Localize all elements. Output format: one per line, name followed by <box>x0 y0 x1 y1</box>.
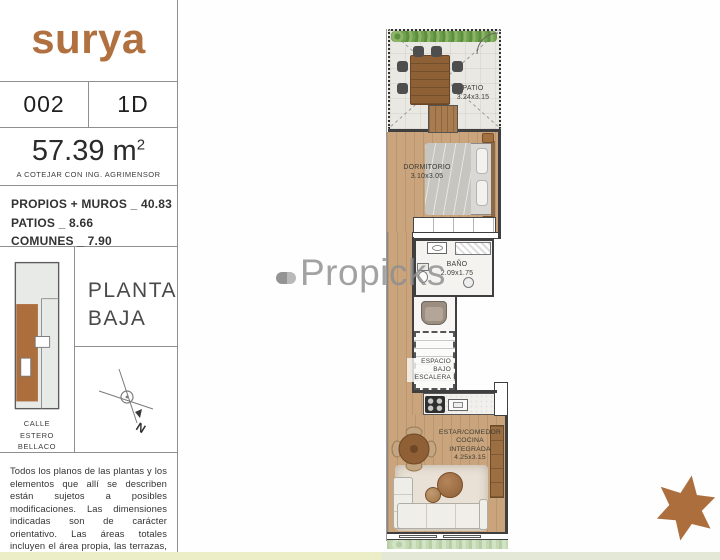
bedroom-dims: 3.10x3.05 <box>403 173 451 182</box>
bedroom-name: DORMITORIO <box>403 164 451 173</box>
wall <box>412 232 501 239</box>
patio-table <box>410 55 450 105</box>
wall <box>498 129 501 239</box>
disclaimer: Todos los planos de las plantas y los el… <box>0 453 177 560</box>
floor-label-line2: BAJA <box>88 305 177 333</box>
under-stairs-line3: ESCALERA <box>407 374 451 382</box>
front-garden-strip <box>387 540 508 549</box>
kitchen-sink <box>448 399 468 411</box>
window <box>399 535 437 538</box>
keyplan-cell: CALLE ESTERO BELLACO <box>0 247 75 452</box>
watermark: Propicks <box>276 252 446 294</box>
dining-table <box>391 426 437 472</box>
keyplan-right-column: PLANTA BAJA N <box>75 247 177 452</box>
floor-label: PLANTA BAJA <box>75 247 177 347</box>
living-name-line1: ESTAR/COMEDOR <box>435 429 505 437</box>
patio-door-arc <box>475 31 500 56</box>
wood-deck-step <box>428 105 458 133</box>
wall <box>455 297 457 390</box>
watermark-text: Propicks <box>300 252 446 294</box>
unit-type: 1D <box>89 82 177 127</box>
total-area-value: 57.39 m <box>32 135 137 167</box>
patio-chair <box>452 61 463 72</box>
pouf <box>425 487 441 503</box>
nightstand <box>482 133 494 143</box>
keyplan-caption-line1: CALLE <box>0 418 74 429</box>
patio-name: PATIO <box>451 85 495 94</box>
cooktop <box>425 396 445 413</box>
compass-icon: N <box>91 365 161 435</box>
floorplan-sheet: surya 002 1D 57.39 m2 A COTEJAR CON ING.… <box>0 0 720 560</box>
breakdown-propios: PROPIOS + MUROS _ 40.83 <box>11 195 177 214</box>
patio-chair <box>431 46 442 57</box>
armchair <box>421 301 447 325</box>
wardrobe <box>413 217 496 233</box>
living-dims: 4.25x3.15 <box>435 454 505 462</box>
living-label: ESTAR/COMEDOR COCINA INTEGRADA 4.25x3.15 <box>435 429 505 463</box>
patio-chair <box>397 61 408 72</box>
keyplan-caption: CALLE ESTERO BELLACO <box>0 418 74 452</box>
patio-chair <box>413 46 424 57</box>
floor-label-line1: PLANTA <box>88 277 177 305</box>
total-area-sup: 2 <box>137 136 145 153</box>
keyplan-icon <box>11 259 63 412</box>
keyplan-section: CALLE ESTERO BELLACO PLANTA BAJA <box>0 247 177 453</box>
breakdown-patios: PATIOS _ 8.66 <box>11 214 177 233</box>
kitchen-floor <box>412 393 423 415</box>
ground-strip <box>0 552 720 560</box>
under-stairs-line2: BAJO <box>407 366 451 374</box>
total-area: 57.39 m2 <box>0 135 177 168</box>
shower <box>455 242 491 255</box>
patio-dims: 3.24x3.15 <box>451 94 495 103</box>
area-note: A COTEJAR CON ING. AGRIMENSOR <box>0 170 177 179</box>
compass-n-label: N <box>133 419 148 434</box>
star-burst-icon <box>650 470 720 546</box>
sidebar: surya 002 1D 57.39 m2 A COTEJAR CON ING.… <box>0 0 178 552</box>
bathroom-fixture <box>463 277 474 288</box>
living-name-line2: COCINA INTEGRADA <box>435 437 505 454</box>
sofa-armrest <box>479 499 488 530</box>
watermark-icon <box>276 272 296 284</box>
pillow <box>476 180 488 206</box>
wall <box>494 382 508 416</box>
area-breakdown: PROPIOS + MUROS _ 40.83 PATIOS _ 8.66 CO… <box>0 186 177 247</box>
unit-number: 002 <box>0 82 89 127</box>
brand-logo: surya <box>0 0 177 82</box>
patio-chair <box>397 83 408 94</box>
wall <box>412 390 497 393</box>
pillow <box>476 148 488 174</box>
bed-headboard <box>491 141 495 217</box>
keyplan-caption-line2: ESTERO BELLACO <box>0 430 74 453</box>
patio-label: PATIO 3.24x3.15 <box>451 85 495 103</box>
under-stairs-label: ESPACIO BAJO ESCALERA <box>407 358 454 382</box>
area-section: 57.39 m2 A COTEJAR CON ING. AGRIMENSOR <box>0 128 177 186</box>
unit-row: 002 1D <box>0 82 177 128</box>
sofa <box>397 503 485 529</box>
window <box>443 535 481 538</box>
bedroom-label: DORMITORIO 3.10x3.05 <box>403 164 451 182</box>
compass-cell: N <box>75 347 177 452</box>
under-stairs-line1: ESPACIO <box>407 358 451 366</box>
